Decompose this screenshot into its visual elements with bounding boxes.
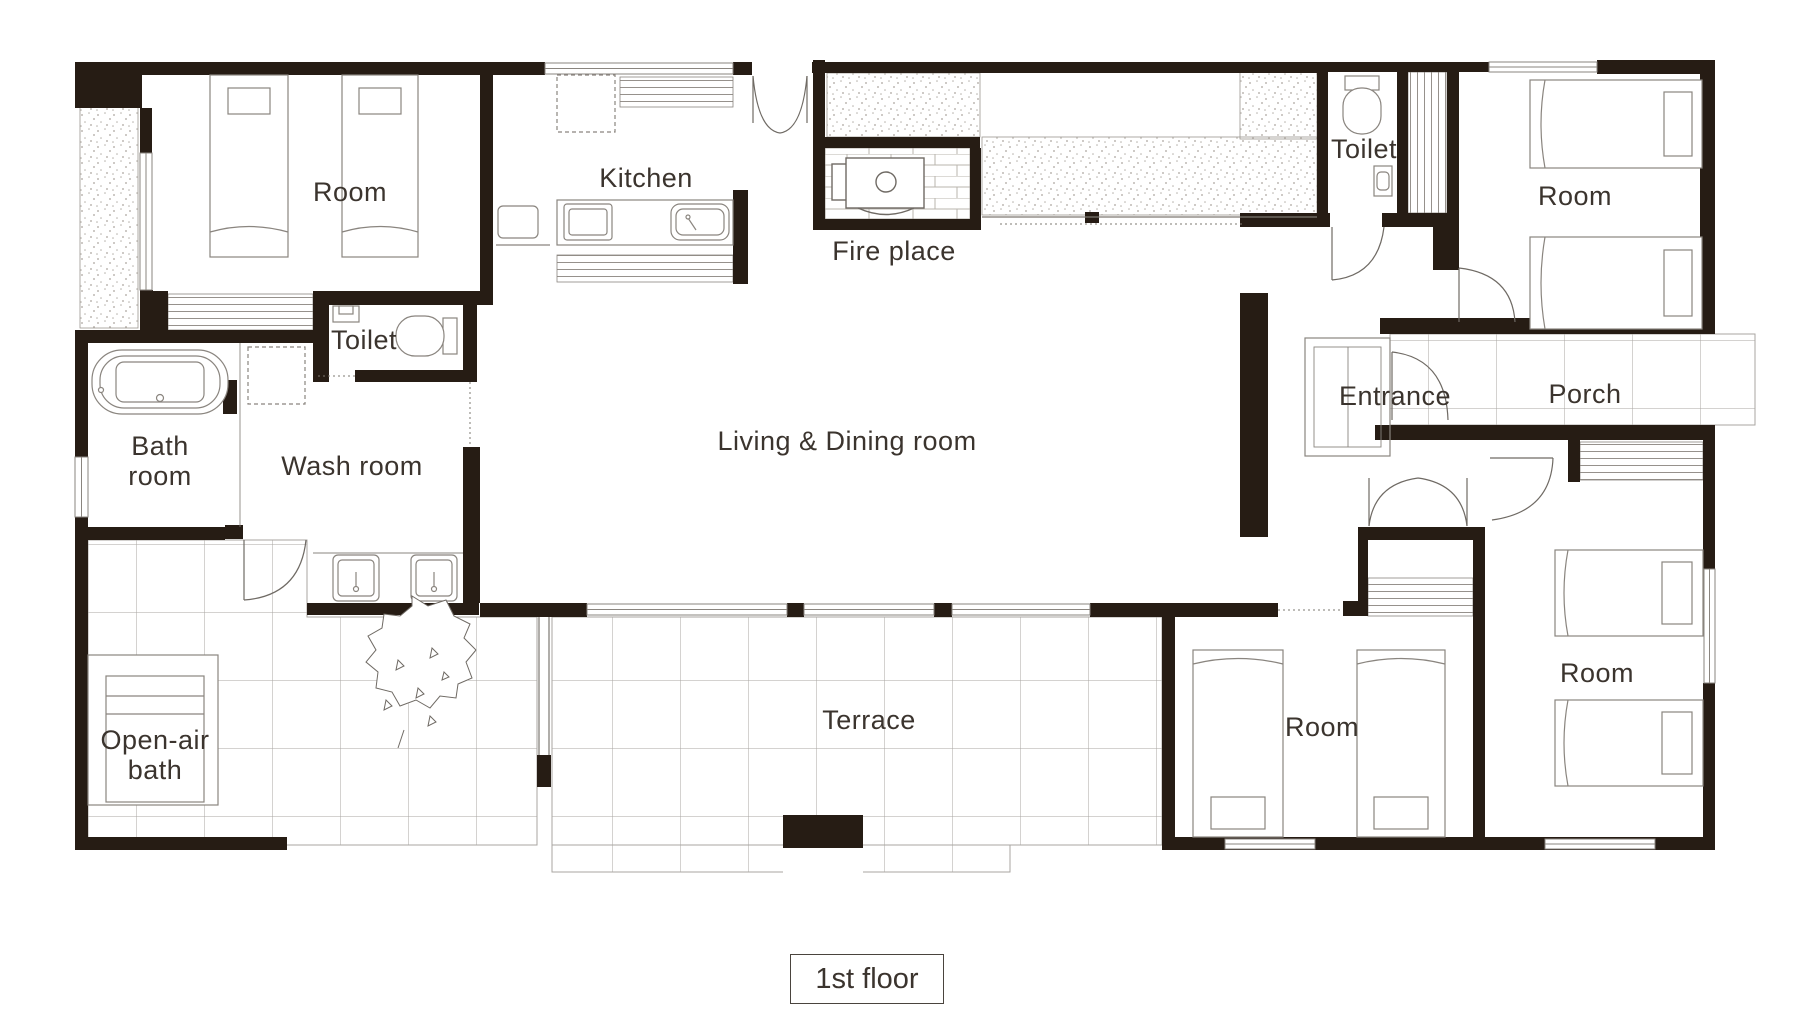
toilet-icon [1343,76,1381,134]
floor-plan: Room Kitchen Fire place Toilet Room Toil… [0,0,1800,1013]
wood-stove-icon [832,158,924,215]
label-toilet-top-right: Toilet [1331,134,1397,164]
bed-icon [1530,80,1702,168]
floor-plan-drawing [0,0,1800,1013]
bathtub-icon [92,350,228,414]
bed-icon [1193,650,1283,837]
door-room-top-right [1459,268,1515,322]
floor-label: 1st floor [790,954,944,1004]
label-fire-place: Fire place [832,236,956,266]
bed-icon [1555,700,1703,786]
fireplace-area [825,148,970,219]
label-room-bottom-middle: Room [1285,712,1359,742]
label-terrace: Terrace [822,705,916,735]
label-bath-room: Bath room [128,431,192,491]
label-kitchen: Kitchen [599,163,693,193]
stove-icon [564,204,612,240]
sink-icon [671,204,729,240]
label-room-top-left: Room [313,177,387,207]
sink-icon [333,555,379,601]
cabinet-icon [333,306,359,322]
label-living-dining: Living & Dining room [717,426,976,456]
bed-icon [1555,550,1703,636]
door-room-bottom-right [1490,458,1553,520]
washing-machine-outline [248,347,305,404]
bed-icon [1530,237,1702,329]
refrigerator-outline [557,75,615,132]
sink-icon [411,555,457,601]
label-entrance: Entrance [1339,381,1451,411]
label-room-top-right: Room [1538,181,1612,211]
label-room-bottom-right: Room [1560,658,1634,688]
door-back-double [753,76,807,133]
toilet-icon [396,316,457,356]
appliance-icon [496,206,550,245]
label-porch: Porch [1548,379,1621,409]
label-open-air-bath: Open-air bath [100,725,209,785]
label-wash-room: Wash room [281,451,423,481]
bed-icon [210,75,288,257]
door-toilet-top-right [1332,227,1384,280]
bed-icon [1357,650,1445,837]
sink-icon [1374,166,1392,196]
label-toilet-left: Toilet [331,325,397,355]
door-hall-double [1369,478,1467,526]
bed-icon [342,75,418,257]
